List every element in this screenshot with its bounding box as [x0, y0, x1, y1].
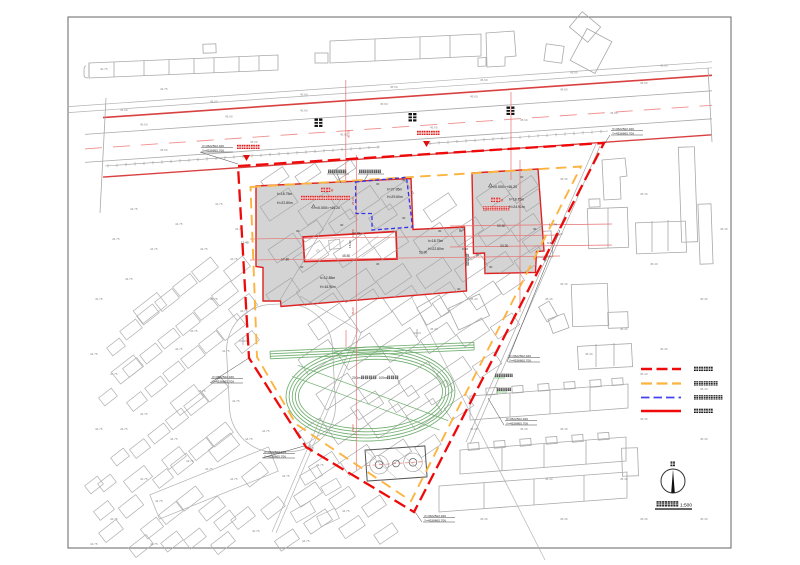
- svg-text:45.60: 45.60: [210, 100, 218, 104]
- svg-text:44.75: 44.75: [175, 347, 183, 351]
- svg-text:44.75: 44.75: [190, 329, 198, 333]
- svg-text:45.80: 45.80: [342, 254, 350, 258]
- svg-text:3F: 3F: [438, 229, 442, 233]
- svg-text:h=12.85m: h=12.85m: [320, 276, 335, 280]
- svg-text:45.60: 45.60: [470, 95, 478, 99]
- svg-text:45.40: 45.40: [470, 297, 478, 301]
- svg-text:Y=4538865.706: Y=4538865.706: [509, 359, 531, 363]
- svg-text:44.75: 44.75: [110, 517, 118, 521]
- svg-text:44.75: 44.75: [100, 67, 108, 71]
- svg-text:100m: 100m: [379, 376, 388, 380]
- svg-text:Y=4538865.706: Y=4538865.706: [264, 455, 286, 459]
- svg-text:45.40: 45.40: [640, 517, 648, 521]
- svg-text:44.75: 44.75: [90, 352, 98, 356]
- svg-text:45.40: 45.40: [640, 192, 648, 196]
- svg-text:Y=4538865.706: Y=4538865.706: [212, 380, 234, 384]
- svg-text:h=18.75m: h=18.75m: [428, 239, 443, 243]
- svg-text:X=4522502.946: X=4522502.946: [424, 514, 446, 518]
- svg-text:Y=4538865.706: Y=4538865.706: [202, 149, 224, 153]
- svg-text:45.40: 45.40: [660, 347, 668, 351]
- svg-text:H=24.91m: H=24.91m: [509, 205, 525, 209]
- svg-text:±0.000=+45.20: ±0.000=+45.20: [316, 206, 340, 210]
- svg-text:3F: 3F: [533, 227, 537, 231]
- svg-text:H=16.90m: H=16.90m: [320, 285, 336, 289]
- svg-text:53.50: 53.50: [497, 224, 505, 228]
- svg-text:45.60: 45.60: [640, 81, 648, 85]
- svg-text:3F: 3F: [402, 178, 406, 182]
- svg-text:3F: 3F: [376, 182, 380, 186]
- svg-text:44.75: 44.75: [140, 477, 148, 481]
- svg-text:45.40: 45.40: [520, 427, 528, 431]
- svg-text:3F: 3F: [300, 265, 304, 269]
- svg-text:45.40: 45.40: [560, 517, 568, 521]
- svg-text:30.00: 30.00: [347, 130, 351, 138]
- svg-text:45.60: 45.60: [120, 108, 128, 112]
- svg-text:45.60: 45.60: [250, 140, 258, 144]
- svg-text:26.00: 26.00: [351, 424, 355, 432]
- svg-text:45.40: 45.40: [470, 427, 478, 431]
- svg-text:45.40: 45.40: [700, 387, 708, 391]
- svg-text:3F: 3F: [476, 253, 480, 257]
- svg-text:44.75: 44.75: [302, 539, 310, 543]
- svg-text:3F: 3F: [457, 287, 461, 291]
- svg-text:44.75: 44.75: [150, 247, 158, 251]
- svg-text:X=4522502.946: X=4522502.946: [509, 354, 531, 358]
- svg-text:45.40: 45.40: [640, 372, 648, 376]
- svg-text:44.75: 44.75: [120, 427, 128, 431]
- svg-text:X=4522502.946: X=4522502.946: [506, 417, 528, 421]
- svg-text:44.75: 44.75: [170, 437, 178, 441]
- svg-text:45.40: 45.40: [620, 477, 628, 481]
- svg-text:3F: 3F: [296, 229, 300, 233]
- svg-text:45.40: 45.40: [650, 262, 658, 266]
- svg-text:45.40: 45.40: [700, 437, 708, 441]
- svg-text:45.40: 45.40: [700, 297, 708, 301]
- svg-text:44.75: 44.75: [160, 87, 168, 91]
- svg-text:X=4522502.946: X=4522502.946: [264, 450, 286, 454]
- svg-text:1:500: 1:500: [680, 502, 692, 508]
- svg-text:44.75: 44.75: [205, 467, 213, 471]
- svg-text:45.60: 45.60: [610, 111, 618, 115]
- svg-text:45.40: 45.40: [560, 427, 568, 431]
- svg-text:44.75: 44.75: [155, 499, 163, 503]
- svg-text:45.40: 45.40: [720, 227, 728, 231]
- svg-text:44.75: 44.75: [140, 412, 148, 416]
- svg-text:3F: 3F: [402, 216, 406, 220]
- svg-text:Y=4538865.706: Y=4538865.706: [506, 422, 528, 426]
- svg-text:45.40: 45.40: [620, 327, 628, 331]
- svg-text:H=22.80m: H=22.80m: [428, 247, 444, 251]
- svg-text:45.60: 45.60: [660, 63, 668, 67]
- svg-text:45.60: 45.60: [380, 102, 388, 106]
- svg-text:±0.000=+46.20: ±0.000=+46.20: [493, 185, 517, 189]
- svg-text:15.20: 15.20: [351, 229, 355, 237]
- svg-text:44.75: 44.75: [125, 277, 133, 281]
- svg-text:X=4522502.946: X=4522502.946: [212, 375, 234, 379]
- svg-text:33.30: 33.30: [500, 244, 508, 248]
- svg-text:17.80: 17.80: [281, 258, 289, 262]
- svg-text:H=29.60m: H=29.60m: [387, 195, 403, 199]
- svg-text:45.40: 45.40: [560, 282, 568, 286]
- svg-text:45.60: 45.60: [390, 85, 398, 89]
- svg-text:44.75: 44.75: [175, 222, 183, 226]
- svg-text:15.90: 15.90: [348, 240, 352, 248]
- svg-text:44.75: 44.75: [232, 399, 240, 403]
- svg-text:h=27.95m: h=27.95m: [387, 188, 402, 192]
- svg-text:45.60: 45.60: [300, 92, 308, 96]
- svg-text:3F: 3F: [459, 229, 463, 233]
- svg-text:9.80: 9.80: [462, 247, 468, 251]
- svg-text:44.75: 44.75: [90, 542, 98, 546]
- svg-text:45.40: 45.40: [640, 417, 648, 421]
- svg-text:45.40: 45.40: [430, 327, 438, 331]
- svg-text:44.75: 44.75: [230, 477, 238, 481]
- svg-text:44.75: 44.75: [252, 529, 260, 533]
- svg-text:H=22.80m: H=22.80m: [277, 201, 293, 205]
- svg-text:Y=4538865.706: Y=4538865.706: [424, 519, 446, 523]
- svg-text:3F: 3F: [376, 262, 380, 266]
- svg-text:44.75: 44.75: [210, 297, 218, 301]
- svg-text:45.40: 45.40: [545, 297, 553, 301]
- svg-text:3F: 3F: [520, 175, 524, 179]
- svg-text:3F: 3F: [489, 265, 493, 269]
- svg-text:45.60: 45.60: [570, 71, 578, 75]
- svg-text:h=18.75m: h=18.75m: [509, 198, 524, 202]
- svg-text:44.75: 44.75: [245, 437, 253, 441]
- svg-text:44.75: 44.75: [282, 474, 290, 478]
- svg-text:X=4522502.946: X=4522502.946: [612, 127, 634, 131]
- svg-text:h=18.75m: h=18.75m: [277, 192, 292, 196]
- svg-text:45.40: 45.40: [560, 177, 568, 181]
- svg-text:45.60: 45.60: [480, 78, 488, 82]
- svg-text:45.60: 45.60: [140, 123, 148, 127]
- svg-text:45.40: 45.40: [480, 517, 488, 521]
- svg-text:3F: 3F: [340, 223, 344, 227]
- svg-text:53.90: 53.90: [419, 251, 427, 255]
- svg-text:44.75: 44.75: [230, 257, 238, 261]
- svg-text:45.40: 45.40: [585, 352, 593, 356]
- svg-text:Y=4538865.706: Y=4538865.706: [612, 132, 634, 136]
- svg-text:44.75: 44.75: [215, 202, 223, 206]
- svg-text:45.60: 45.60: [560, 87, 568, 91]
- svg-text:44.75: 44.75: [222, 349, 230, 353]
- svg-text:36.00: 36.00: [351, 307, 355, 315]
- svg-text:44.75: 44.75: [186, 459, 194, 463]
- svg-text:X=4522502.946: X=4522502.946: [202, 144, 224, 148]
- svg-text:45.40: 45.40: [700, 517, 708, 521]
- svg-text:45.60: 45.60: [300, 108, 308, 112]
- svg-text:25.20: 25.20: [351, 197, 355, 205]
- svg-text:44.75: 44.75: [95, 427, 103, 431]
- svg-text:44.75: 44.75: [342, 509, 350, 513]
- svg-text:44.75: 44.75: [112, 237, 120, 241]
- svg-text:45.60: 45.60: [430, 125, 438, 129]
- svg-text:44.75: 44.75: [95, 297, 103, 301]
- svg-text:45.60: 45.60: [225, 115, 233, 119]
- svg-text:44.75: 44.75: [150, 542, 158, 546]
- svg-text:45.60: 45.60: [520, 118, 528, 122]
- svg-text:44.75: 44.75: [130, 207, 138, 211]
- svg-text:44.75: 44.75: [262, 429, 270, 433]
- svg-text:45.40: 45.40: [545, 477, 553, 481]
- svg-text:45.60: 45.60: [160, 148, 168, 152]
- svg-text:44.75: 44.75: [200, 247, 208, 251]
